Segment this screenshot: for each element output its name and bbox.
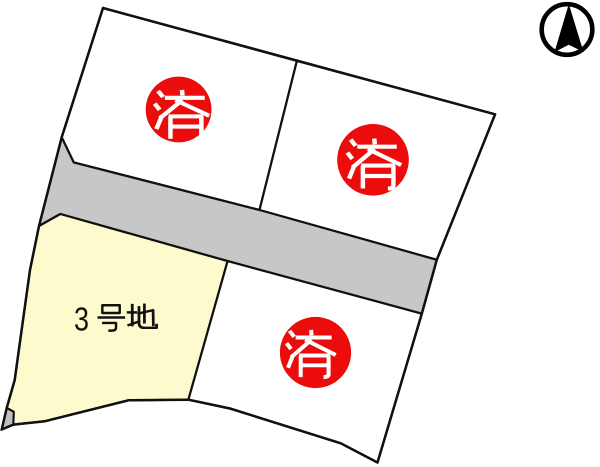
svg-text:3: 3 [74, 302, 89, 339]
